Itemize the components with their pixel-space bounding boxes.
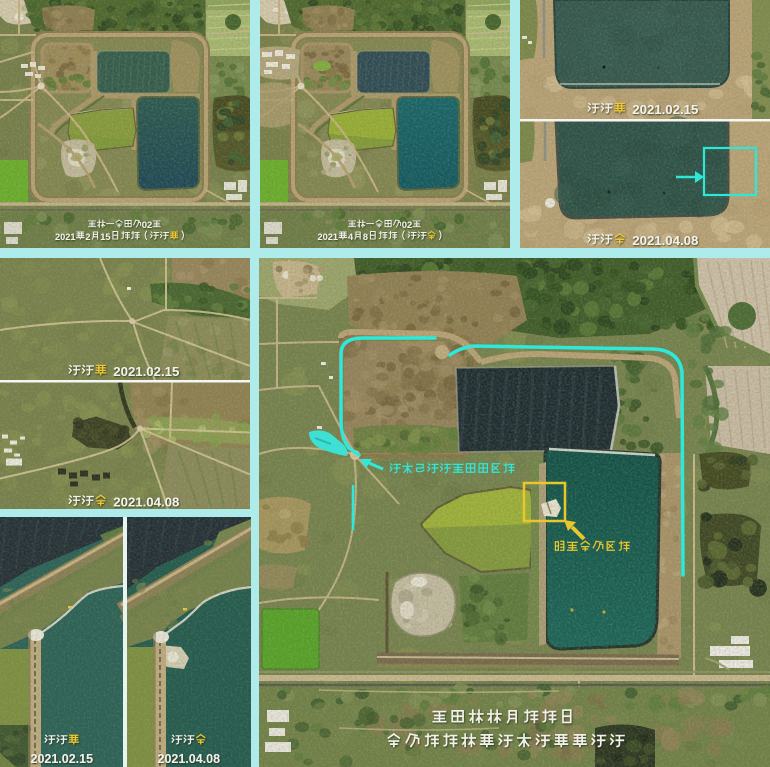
svg-text:8: 8 — [363, 232, 368, 242]
svg-text:2021.02.15: 2021.02.15 — [632, 102, 698, 117]
svg-text:4: 4 — [348, 232, 354, 242]
svg-text:02: 02 — [142, 220, 153, 231]
svg-text:02: 02 — [402, 220, 413, 231]
svg-text:2: 2 — [85, 232, 90, 242]
svg-text:2021.04.08: 2021.04.08 — [158, 752, 221, 766]
svg-text:2021: 2021 — [318, 232, 338, 242]
svg-text:15: 15 — [100, 232, 110, 242]
svg-text:2021.02.15: 2021.02.15 — [31, 752, 94, 766]
svg-text:2021.04.08: 2021.04.08 — [113, 495, 179, 510]
svg-text:2021.02.15: 2021.02.15 — [113, 364, 179, 379]
svg-text:2021.04.08: 2021.04.08 — [632, 233, 698, 248]
svg-text:2021: 2021 — [55, 232, 75, 242]
